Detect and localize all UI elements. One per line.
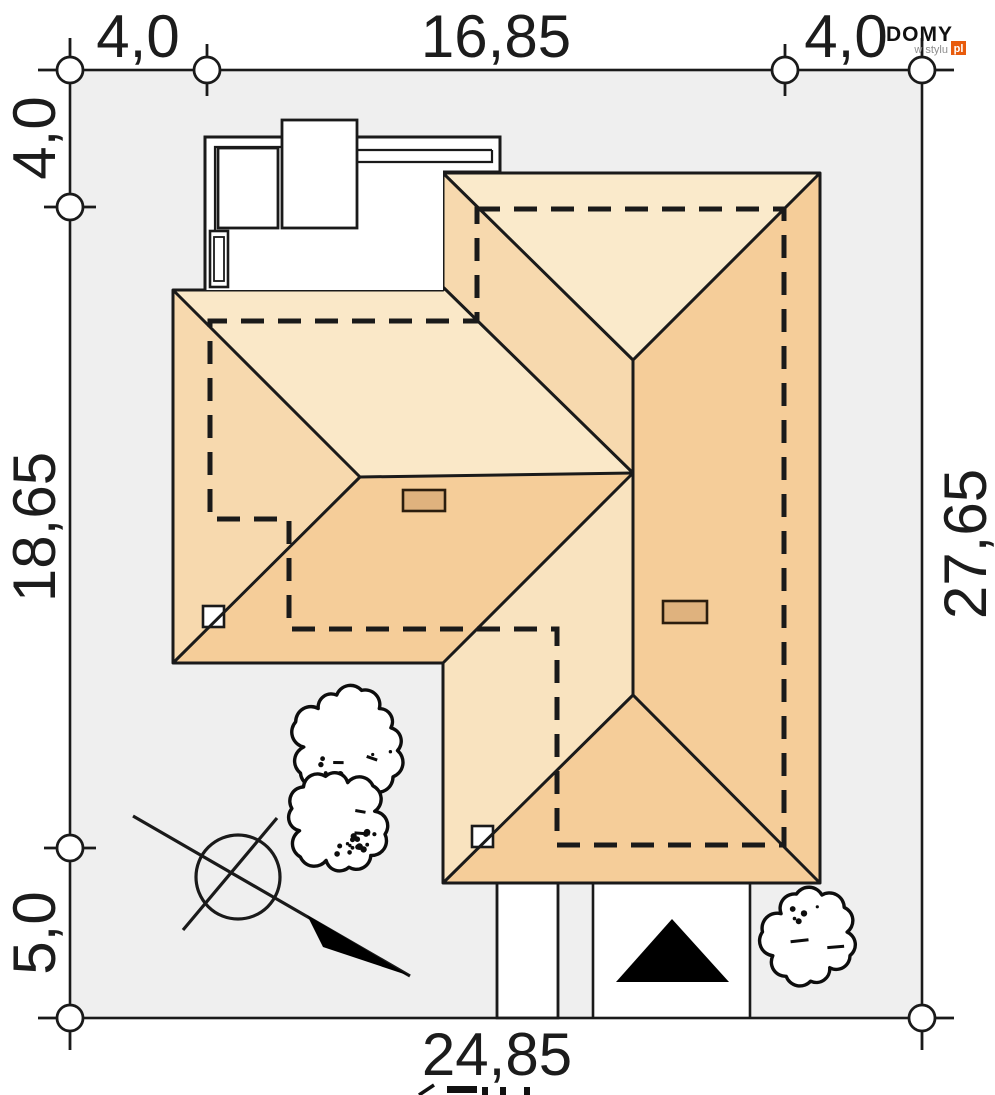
walkway — [497, 883, 558, 1018]
survey-point — [194, 57, 220, 83]
survey-point — [57, 194, 83, 220]
survey-point — [909, 1005, 935, 1031]
survey-point — [57, 835, 83, 861]
logo-tld-text: pl — [954, 43, 964, 55]
terrace-pillar — [210, 231, 228, 287]
survey-point — [772, 57, 798, 83]
logo-tagline-text: w stylu — [913, 44, 948, 56]
chimney — [663, 601, 707, 623]
driveway-group — [497, 883, 750, 1018]
dimension-label-top-right: 4,0 — [804, 3, 887, 70]
site-plan-page: 4,0 16,85 4,0 4,0 18,65 5,0 27,65 24,85 … — [0, 0, 995, 1095]
dimension-label-top-left: 4,0 — [96, 3, 179, 70]
dimension-label-bottom: 24,85 — [422, 1021, 572, 1088]
brand-logo: DOMY w stylu pl — [886, 23, 966, 56]
garage-roof-panel — [282, 120, 357, 228]
survey-point — [57, 57, 83, 83]
dimension-label-right: 27,65 — [932, 469, 995, 619]
chimney — [403, 490, 445, 511]
dimension-label-top-center: 16,85 — [421, 3, 571, 70]
dimension-label-left-top: 4,0 — [1, 96, 68, 179]
tree-icon — [289, 773, 388, 871]
site-plan-svg: 4,0 16,85 4,0 4,0 18,65 5,0 27,65 24,85 … — [0, 0, 995, 1095]
survey-point — [909, 57, 935, 83]
logo-brand-text: DOMY — [886, 23, 953, 46]
dimension-label-left-middle: 18,65 — [1, 452, 68, 602]
garage-skylight — [218, 148, 278, 228]
dimension-label-left-bottom: 5,0 — [1, 891, 68, 974]
survey-point — [57, 1005, 83, 1031]
